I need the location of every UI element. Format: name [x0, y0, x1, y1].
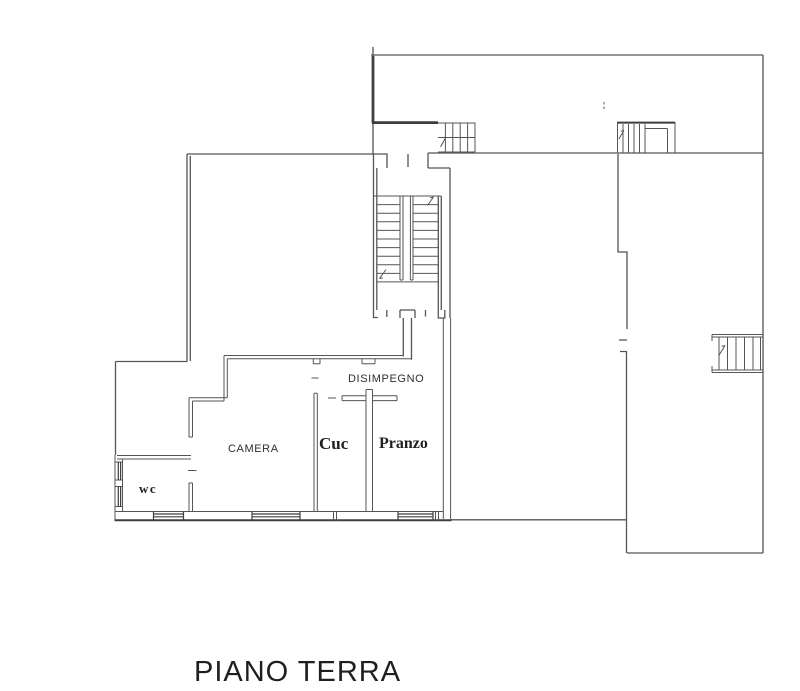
floor-plan-drawing: DISIMPEGNO CAMERA Cuc Pranzo wc PIANO TE…: [0, 0, 800, 691]
stair-top-right: [617, 122, 675, 153]
bottom-wall: [115, 511, 452, 521]
room-label-wc: wc: [139, 481, 157, 496]
stair-top-left: [438, 123, 475, 152]
bottom-windows-glazing: [154, 512, 434, 521]
stair-treads: [374, 196, 442, 282]
stair-top-right-lines: [618, 122, 676, 153]
room-label-camera: CAMERA: [228, 443, 279, 455]
stair-top-left-lines: [438, 123, 475, 152]
upper-left-room-walls: [116, 154, 191, 455]
stair-right-wall-lines: [712, 335, 763, 373]
room-label-disimpegno: DISIMPEGNO: [348, 373, 424, 385]
room-label-cucina: Cuc: [319, 434, 349, 453]
floor-plan-page: DISIMPEGNO CAMERA Cuc Pranzo wc PIANO TE…: [0, 0, 800, 691]
floor-plan-title: PIANO TERRA: [194, 656, 401, 688]
wc-window-glazing: [118, 462, 120, 507]
exterior-walls: [371, 47, 763, 553]
partition-lines: [312, 318, 451, 519]
cuc-pranzo-partitions: [312, 318, 451, 519]
thick-wall-lines: [372, 56, 438, 123]
upper-left-room-and-wc: [115, 154, 191, 521]
stair-right-wall: [712, 335, 763, 373]
room-label-pranzo: Pranzo: [379, 435, 428, 452]
main-staircase: [187, 153, 450, 360]
